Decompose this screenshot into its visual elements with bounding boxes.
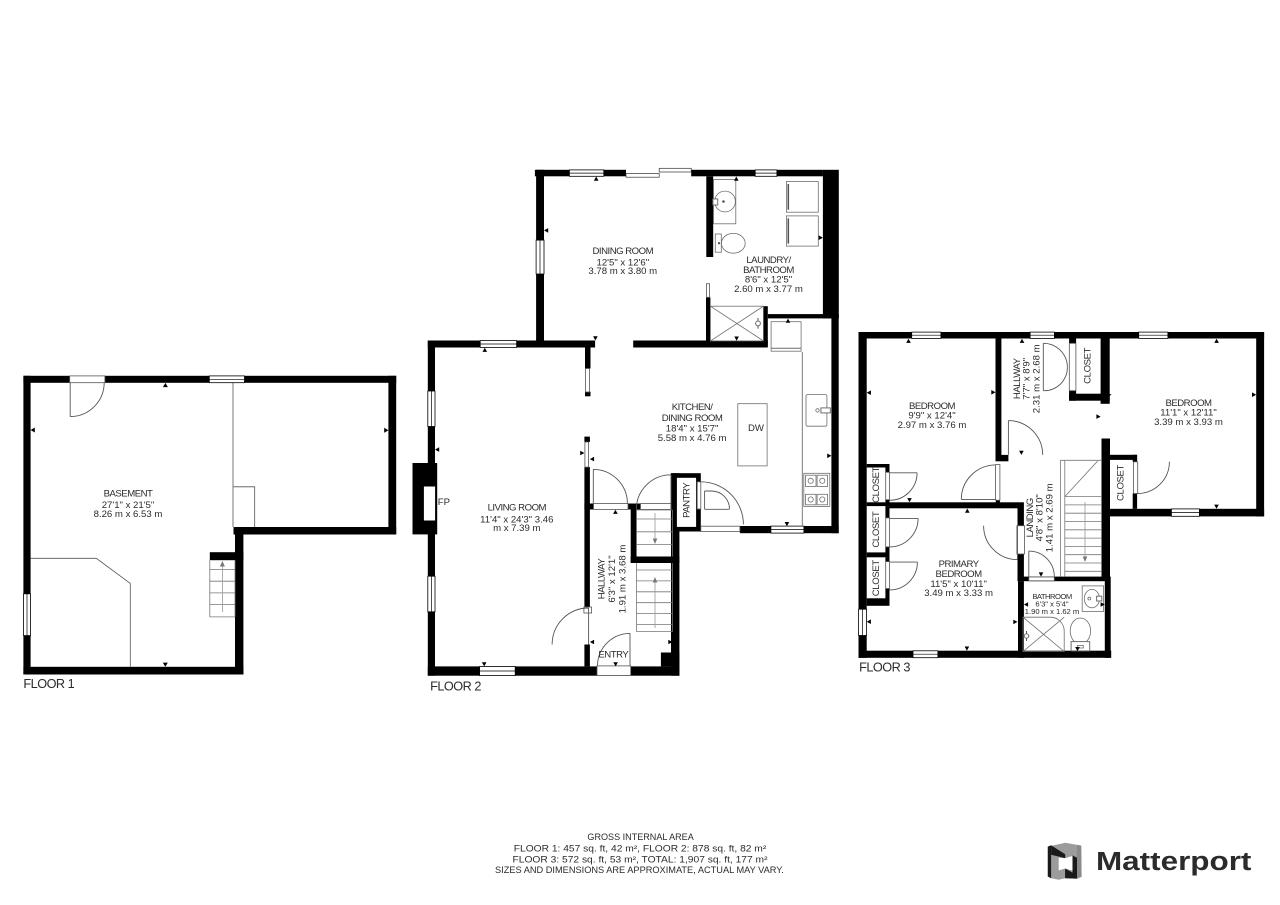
- svg-text:FLOOR 3: 572 sq. ft, 53 m², TO: FLOOR 3: 572 sq. ft, 53 m², TOTAL: 1,907…: [513, 855, 768, 865]
- svg-text:6'3" x 12'1": 6'3" x 12'1": [607, 555, 618, 602]
- svg-text:DW: DW: [748, 423, 765, 434]
- svg-text:LAUNDRY/: LAUNDRY/: [746, 255, 791, 266]
- svg-text:CLOSET: CLOSET: [1083, 347, 1094, 384]
- svg-text:FLOOR 1: 457 sq. ft, 42 m², FL: FLOOR 1: 457 sq. ft, 42 m², FLOOR 2: 878…: [514, 843, 767, 853]
- svg-text:FLOOR 3: FLOOR 3: [859, 661, 910, 675]
- svg-text:1.90 m x 1.62 m: 1.90 m x 1.62 m: [1025, 607, 1079, 616]
- svg-text:FP: FP: [438, 497, 450, 508]
- svg-text:ENTRY: ENTRY: [598, 649, 629, 660]
- svg-text:FLOOR 1: FLOOR 1: [23, 677, 74, 691]
- svg-text:2.97 m x 3.76 m: 2.97 m x 3.76 m: [898, 420, 967, 431]
- svg-text:3.39 m x 3.93 m: 3.39 m x 3.93 m: [1154, 417, 1223, 428]
- svg-text:m x 7.39 m: m x 7.39 m: [493, 523, 540, 534]
- svg-text:Matterport: Matterport: [1096, 848, 1252, 876]
- svg-text:KITCHEN/: KITCHEN/: [672, 402, 714, 413]
- svg-text:3.78 m x 3.80 m: 3.78 m x 3.80 m: [588, 266, 657, 277]
- svg-text:SIZES AND DIMENSIONS ARE APPRO: SIZES AND DIMENSIONS ARE APPROXIMATE, AC…: [495, 865, 784, 875]
- svg-text:CLOSET: CLOSET: [871, 511, 882, 548]
- svg-text:HALLWAY: HALLWAY: [597, 558, 608, 600]
- svg-text:3.49 m x 3.33 m: 3.49 m x 3.33 m: [924, 588, 993, 599]
- svg-text:8.26 m x 6.53 m: 8.26 m x 6.53 m: [94, 509, 163, 520]
- svg-text:2.60 m x 3.77 m: 2.60 m x 3.77 m: [734, 284, 803, 295]
- svg-text:2.31 m x 2.68 m: 2.31 m x 2.68 m: [1031, 344, 1042, 413]
- svg-text:5.58 m x 4.76 m: 5.58 m x 4.76 m: [658, 433, 727, 444]
- svg-text:LIVING ROOM: LIVING ROOM: [488, 503, 547, 514]
- svg-text:CLOSET: CLOSET: [871, 560, 882, 597]
- svg-text:1.41 m x 2.69 m: 1.41 m x 2.69 m: [1044, 483, 1055, 552]
- svg-text:BEDROOM: BEDROOM: [936, 569, 983, 580]
- svg-text:GROSS INTERNAL AREA: GROSS INTERNAL AREA: [587, 832, 693, 842]
- svg-text:DINING ROOM: DINING ROOM: [593, 246, 654, 257]
- svg-text:1.91 m x 3.68 m: 1.91 m x 3.68 m: [618, 545, 629, 614]
- svg-text:PANTRY: PANTRY: [681, 482, 692, 518]
- svg-text:CLOSET: CLOSET: [1116, 464, 1127, 501]
- svg-text:FLOOR 2: FLOOR 2: [430, 679, 481, 693]
- svg-text:CLOSET: CLOSET: [871, 466, 882, 503]
- svg-text:BASEMENT: BASEMENT: [104, 489, 153, 500]
